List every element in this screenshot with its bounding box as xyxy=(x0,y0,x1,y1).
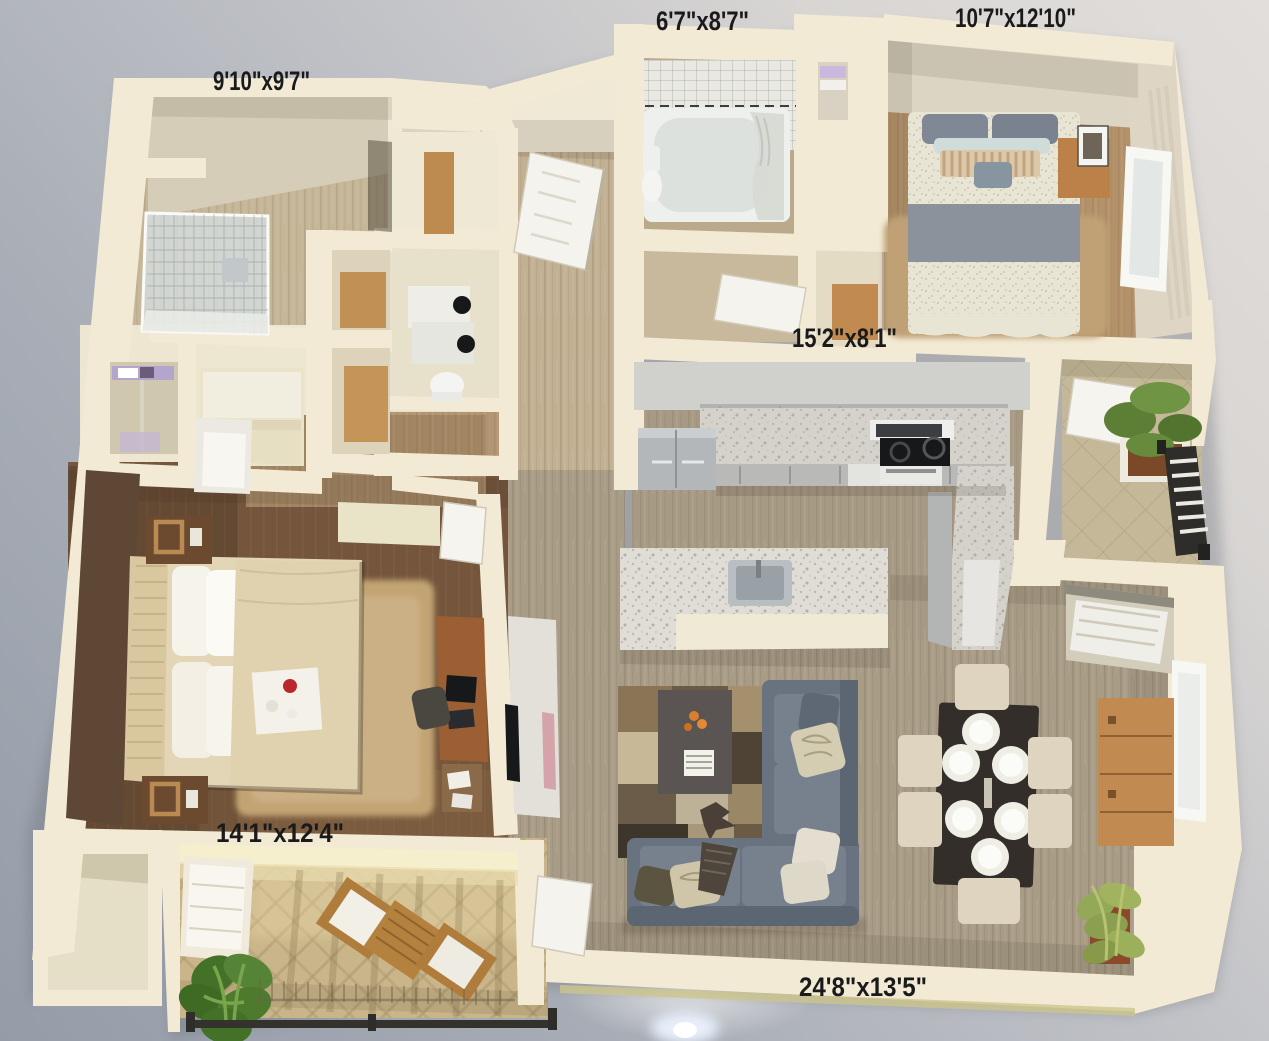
svg-text:6'7"x8'7": 6'7"x8'7" xyxy=(656,6,749,36)
svg-text:9'10"x9'7": 9'10"x9'7" xyxy=(213,66,310,96)
svg-text:15'2"x8'1": 15'2"x8'1" xyxy=(792,323,897,353)
svg-text:24'8"x13'5": 24'8"x13'5" xyxy=(799,972,927,1002)
svg-text:14'1"x12'4": 14'1"x12'4" xyxy=(216,818,344,848)
svg-text:10'7"x12'10": 10'7"x12'10" xyxy=(955,3,1076,33)
